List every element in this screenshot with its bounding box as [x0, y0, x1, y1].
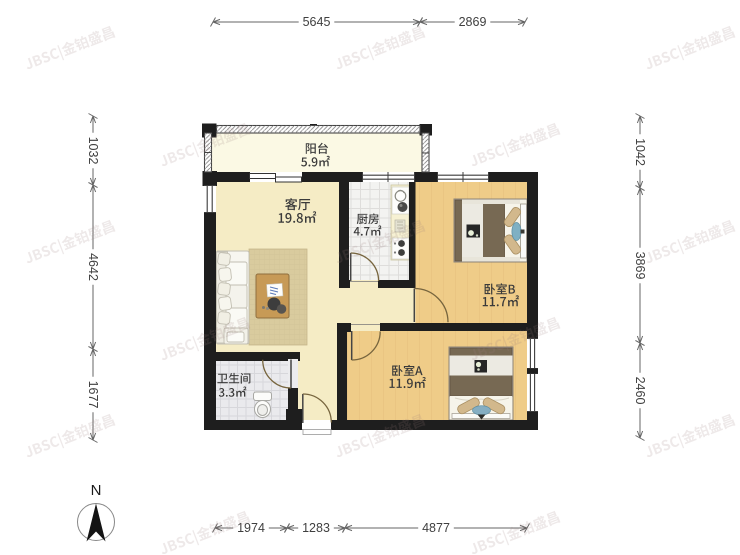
svg-text:1042: 1042: [633, 138, 647, 166]
svg-text:1677: 1677: [86, 381, 100, 409]
svg-text:1974: 1974: [237, 521, 265, 535]
svg-text:4642: 4642: [86, 253, 100, 281]
svg-text:2460: 2460: [633, 377, 647, 405]
svg-text:N: N: [91, 482, 102, 499]
svg-text:3869: 3869: [633, 252, 647, 280]
svg-text:4877: 4877: [422, 521, 450, 535]
svg-text:2869: 2869: [459, 15, 487, 29]
svg-text:5645: 5645: [303, 15, 331, 29]
svg-text:1032: 1032: [86, 137, 100, 165]
svg-text:1283: 1283: [302, 521, 330, 535]
